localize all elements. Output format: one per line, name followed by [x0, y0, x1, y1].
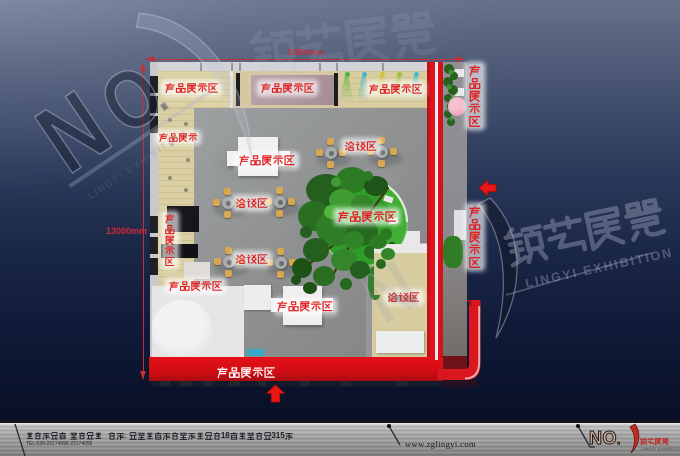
svg-text:N: N [350, 244, 432, 339]
